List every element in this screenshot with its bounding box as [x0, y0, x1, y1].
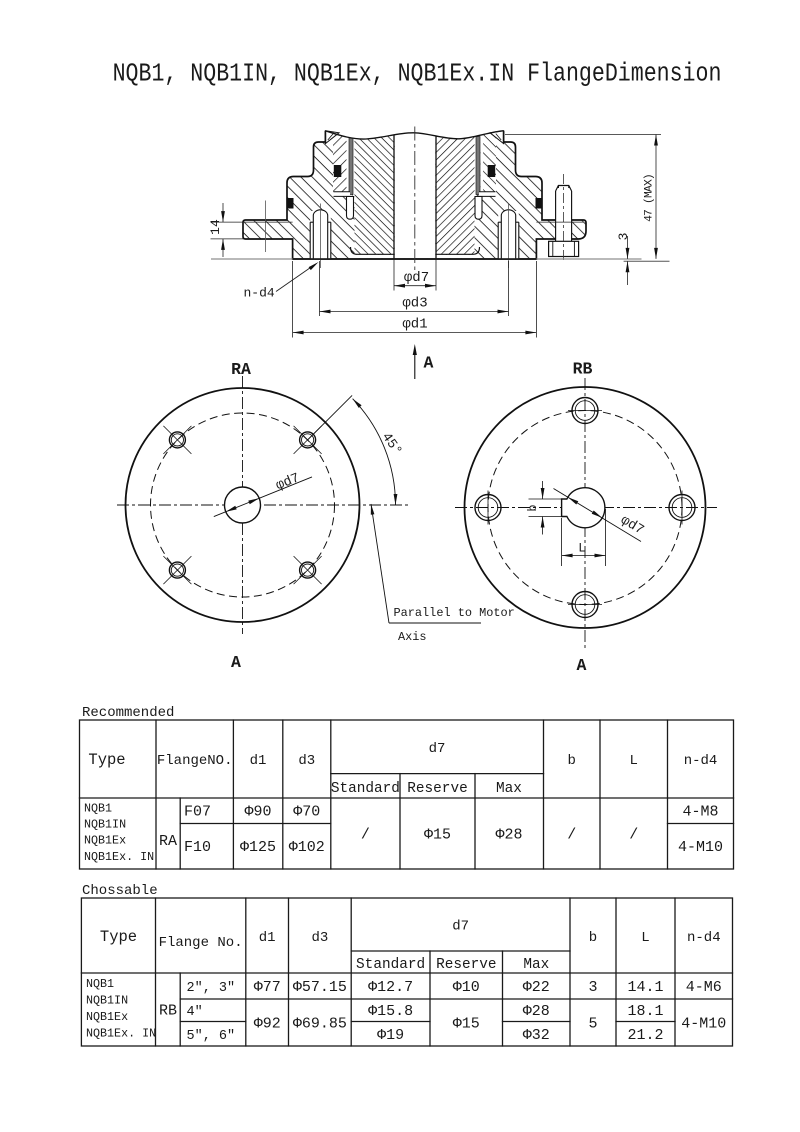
svg-text:2", 3": 2", 3": [187, 981, 236, 996]
svg-text:47 (MAX): 47 (MAX): [644, 174, 656, 222]
svg-text:L: L: [641, 930, 649, 946]
svg-text:RA: RA: [159, 833, 177, 850]
svg-text:Axis: Axis: [398, 630, 427, 644]
svg-text:NQB1Ex. IN: NQB1Ex. IN: [84, 850, 154, 864]
svg-text:F10: F10: [184, 839, 211, 856]
svg-text:NQB1IN: NQB1IN: [84, 818, 126, 832]
svg-text:Reserve: Reserve: [436, 957, 496, 973]
svg-text:Φ28: Φ28: [523, 1003, 550, 1020]
svg-text:φd1: φd1: [402, 317, 427, 333]
svg-text:Chossable: Chossable: [82, 883, 158, 899]
svg-text:Flange No.: Flange No.: [159, 935, 243, 951]
svg-text:Φ15: Φ15: [453, 1016, 480, 1033]
svg-text:4-M8: 4-M8: [682, 804, 718, 821]
svg-text:b: b: [567, 753, 575, 769]
svg-text:NQB1: NQB1: [86, 977, 114, 991]
svg-text:Φ92: Φ92: [254, 1016, 281, 1033]
svg-text:d1: d1: [250, 753, 267, 769]
svg-text:Φ57.15: Φ57.15: [293, 979, 347, 996]
svg-text:Φ22: Φ22: [523, 979, 550, 996]
svg-text:Standard: Standard: [356, 957, 425, 973]
svg-text:NQB1: NQB1: [84, 802, 112, 816]
svg-text:L: L: [629, 753, 637, 769]
svg-text:3: 3: [616, 233, 631, 241]
svg-text:4-M6: 4-M6: [686, 979, 722, 996]
svg-text:5: 5: [588, 1016, 597, 1033]
svg-text:NQB1Ex: NQB1Ex: [86, 1010, 128, 1024]
svg-text:Φ69.85: Φ69.85: [293, 1016, 347, 1033]
svg-text:Φ12.7: Φ12.7: [368, 979, 413, 996]
svg-text:NQB1IN: NQB1IN: [86, 994, 128, 1008]
svg-text:NQB1Ex. IN: NQB1Ex. IN: [86, 1027, 156, 1041]
svg-text:NQB1, NQB1IN, NQB1Ex, NQB1Ex.I: NQB1, NQB1IN, NQB1Ex, NQB1Ex.IN FlangeDi…: [113, 60, 722, 90]
svg-text:A: A: [424, 354, 434, 373]
svg-text:Max: Max: [496, 781, 522, 797]
svg-text:Parallel to Motor: Parallel to Motor: [394, 606, 515, 620]
svg-text:RB: RB: [573, 360, 593, 379]
svg-text:d1: d1: [259, 930, 276, 946]
svg-text:Reserve: Reserve: [407, 781, 467, 797]
svg-text:φd3: φd3: [402, 296, 427, 312]
svg-text:Φ10: Φ10: [453, 979, 480, 996]
svg-text:n-d4: n-d4: [244, 286, 275, 301]
svg-text:NQB1Ex: NQB1Ex: [84, 834, 126, 848]
svg-text:d7: d7: [429, 741, 446, 757]
svg-text:F07: F07: [184, 804, 211, 821]
svg-text:Φ102: Φ102: [289, 839, 325, 856]
svg-text:d3: d3: [298, 753, 315, 769]
svg-text:Φ15.8: Φ15.8: [368, 1003, 413, 1020]
svg-text:4-M10: 4-M10: [678, 839, 723, 856]
svg-text:d3: d3: [311, 930, 328, 946]
svg-text:Type: Type: [100, 928, 137, 946]
svg-text:A: A: [231, 653, 241, 672]
svg-text:/: /: [361, 827, 370, 844]
svg-text:Φ32: Φ32: [523, 1027, 550, 1044]
svg-text:FlangeNO.: FlangeNO.: [157, 753, 233, 769]
svg-text:5", 6": 5", 6": [187, 1029, 236, 1044]
svg-text:n-d4: n-d4: [684, 753, 718, 769]
svg-text:Max: Max: [523, 957, 549, 973]
svg-text:14.1: 14.1: [627, 979, 663, 996]
svg-text:Φ28: Φ28: [495, 827, 522, 844]
svg-text:Standard: Standard: [331, 781, 400, 797]
svg-text:Φ15: Φ15: [424, 827, 451, 844]
svg-text:4-M10: 4-M10: [681, 1016, 726, 1033]
svg-text:L: L: [578, 542, 586, 556]
svg-text:A: A: [577, 656, 587, 675]
svg-text:φd7: φd7: [404, 270, 429, 286]
svg-text:b: b: [589, 930, 597, 946]
svg-text:/: /: [629, 827, 638, 844]
svg-text:14: 14: [208, 219, 223, 235]
svg-text:b: b: [527, 504, 540, 511]
svg-text:RB: RB: [159, 1003, 177, 1020]
svg-text:RA: RA: [231, 360, 251, 379]
svg-text:Φ125: Φ125: [240, 839, 276, 856]
svg-text:4": 4": [187, 1005, 203, 1020]
svg-text:Φ70: Φ70: [293, 804, 320, 821]
svg-text:Φ77: Φ77: [254, 979, 281, 996]
svg-text:/: /: [567, 827, 576, 844]
svg-text:21.2: 21.2: [627, 1027, 663, 1044]
svg-text:3: 3: [588, 979, 597, 996]
svg-text:18.1: 18.1: [627, 1003, 663, 1020]
svg-text:Φ19: Φ19: [377, 1027, 404, 1044]
svg-text:Recommended: Recommended: [82, 705, 174, 721]
svg-text:d7: d7: [452, 919, 469, 935]
svg-text:Φ90: Φ90: [244, 804, 271, 821]
svg-text:n-d4: n-d4: [687, 930, 721, 946]
svg-text:Type: Type: [88, 751, 125, 769]
